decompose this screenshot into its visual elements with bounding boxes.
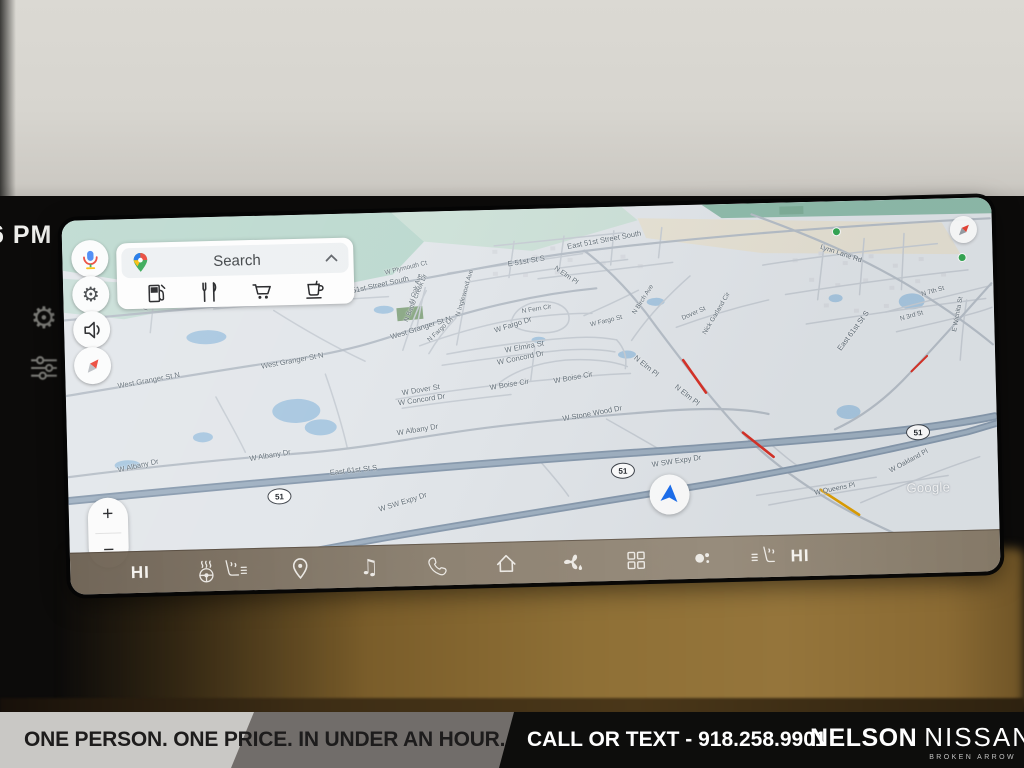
street-label: N Elm Pl xyxy=(553,265,579,286)
steering-wheel-heat-icon xyxy=(193,558,220,585)
street-label: N Inglewood Ave xyxy=(455,269,476,318)
dealer-name-nelson: NELSON xyxy=(810,724,917,753)
street-label: E 51st St S xyxy=(507,253,545,268)
highway-51-shield: 51 xyxy=(267,488,291,505)
driver-seat-heat-button[interactable] xyxy=(219,549,250,592)
street-label: W SW Expy Dr xyxy=(651,453,702,469)
compass-needle-icon xyxy=(954,220,972,238)
street-label: N 7th St xyxy=(921,285,946,298)
search-input[interactable]: Search xyxy=(121,243,349,279)
street-label: W SW Expy Dr xyxy=(377,490,427,514)
street-label: W Queens Pl xyxy=(814,482,856,497)
steering-wheel-heat-button[interactable] xyxy=(193,550,220,593)
street-label: W Fargo St xyxy=(589,314,623,328)
location-pin-icon xyxy=(289,557,312,582)
assistant-button[interactable] xyxy=(690,537,715,580)
restaurants-icon[interactable] xyxy=(198,281,221,304)
microphone-icon xyxy=(80,247,101,269)
zoom-in-button[interactable]: + xyxy=(87,497,128,533)
clock: 6 PM xyxy=(0,221,52,250)
showroom-wall xyxy=(0,0,1024,200)
highway-51-shield: 51 xyxy=(611,462,635,479)
street-label: W Albany Dr xyxy=(117,457,160,475)
climate-button[interactable] xyxy=(559,541,586,584)
search-placeholder: Search xyxy=(149,250,324,271)
banner-tagline: ONE PERSON. ONE PRICE. IN UNDER AN HOUR. xyxy=(24,712,505,768)
speaker-icon xyxy=(81,319,101,339)
google-assistant-icon xyxy=(690,546,715,571)
needle-icon xyxy=(82,355,102,375)
heated-seat-passenger-icon xyxy=(749,544,780,571)
phone-button[interactable] xyxy=(425,544,450,587)
street-label: Lynn Lane Rd xyxy=(819,244,862,264)
street-label: W Oakland Pl xyxy=(888,448,929,475)
dealer-name-nissan: NISSAN xyxy=(924,722,1024,753)
street-label: Dover St xyxy=(681,305,707,321)
dashboard-lower-edge xyxy=(0,698,1024,713)
street-label: N Elm Pl xyxy=(632,353,660,378)
maps-nav-button[interactable] xyxy=(289,548,312,591)
phone-icon xyxy=(425,553,450,578)
google-watermark: Google xyxy=(906,479,950,495)
wall-edge-shadow xyxy=(0,0,16,200)
street-label: W Boise Cir xyxy=(489,377,530,392)
chevron-up-icon[interactable] xyxy=(324,253,338,263)
street-label: E Wichita St xyxy=(951,296,964,332)
sliders-icon xyxy=(26,350,62,386)
home-button[interactable] xyxy=(494,542,519,585)
coffee-icon[interactable] xyxy=(303,278,326,301)
google-map[interactable]: E 51st St SEast 51st Street SouthEast 51… xyxy=(61,197,999,552)
bezel-settings-button[interactable]: ⚙ xyxy=(26,301,62,337)
bezel-equalizer-button[interactable] xyxy=(26,350,62,386)
gas-station-icon[interactable] xyxy=(146,282,169,305)
street-label: N 3rd St xyxy=(899,309,924,322)
search-categories xyxy=(117,275,355,307)
fan-icon xyxy=(559,549,586,576)
street-label: West Granger St N xyxy=(260,350,324,370)
street-label: W Fargo Dr xyxy=(493,314,533,334)
dealer-logo: NELSON NISSAN BROKEN ARROW xyxy=(810,722,1016,761)
driver-seat-heat-level: HI xyxy=(130,552,150,594)
google-maps-pin-icon xyxy=(131,252,150,274)
street-label: East 51st Street South xyxy=(566,228,641,250)
gear-icon: ⚙ xyxy=(82,284,100,304)
heated-seat-icon xyxy=(219,557,250,584)
dealer-location: BROKEN ARROW xyxy=(810,754,1016,761)
infotainment-screen: E 51st St SEast 51st Street SouthEast 51… xyxy=(61,197,1000,594)
music-note-icon: ♫ xyxy=(360,555,379,579)
media-button[interactable]: ♫ xyxy=(359,546,379,588)
passenger-seat-heat-level: HI xyxy=(790,535,810,577)
street-label: N Fern Cir xyxy=(521,303,552,315)
groceries-icon[interactable] xyxy=(251,280,274,303)
street-label: W Boise Cir xyxy=(553,369,594,385)
street-label: W Albany Dr xyxy=(249,447,292,463)
home-icon xyxy=(494,551,519,576)
banner-phone: CALL OR TEXT - 918.258.9901 xyxy=(527,712,827,768)
street-label: W Albany Dr xyxy=(396,422,439,438)
app-grid-icon xyxy=(625,549,648,572)
street-label: East 61st St S xyxy=(835,309,871,353)
street-label: N Elm Pl xyxy=(673,382,701,407)
dealer-banner: ONE PERSON. ONE PRICE. IN UNDER AN HOUR.… xyxy=(0,712,1024,768)
street-label: N Birch Ave xyxy=(631,283,655,315)
street-label: West Granger St N xyxy=(117,370,181,390)
street-label: Nick Garland Cir xyxy=(701,291,731,336)
street-label: W Stone Wood Dr xyxy=(562,403,623,423)
passenger-seat-heat-button[interactable] xyxy=(749,536,780,579)
search-card: Search xyxy=(116,237,355,309)
highway-51-shield: 51 xyxy=(906,424,930,441)
apps-button[interactable] xyxy=(625,539,648,582)
street-label: East 61st St S xyxy=(329,463,377,477)
navigation-arrow-icon xyxy=(656,481,683,508)
